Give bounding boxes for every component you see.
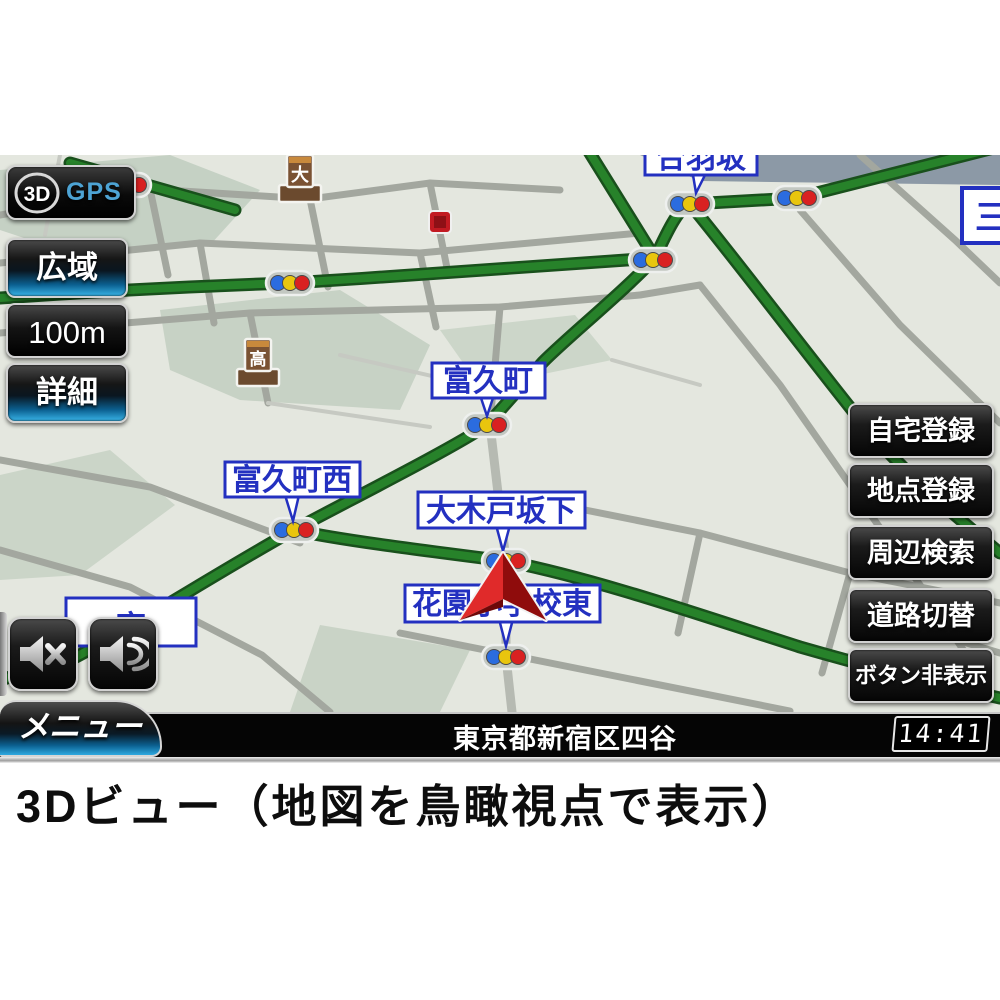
svg-text:合羽坂: 合羽坂 [656,155,746,175]
nearby-search-button[interactable]: 周辺検索 [848,525,994,580]
svg-text:高: 高 [250,349,267,369]
home-register-button[interactable]: 自宅登録 [848,403,994,458]
address-text: 東京都新宿区四谷 [400,717,730,756]
label-tomihisacho: 富久町 [432,363,545,416]
edge-fragment [0,612,7,696]
3d-badge-icon: 3D [14,172,60,214]
road-switch-button[interactable]: 道路切替 [848,588,994,643]
speaker-mute-icon [17,632,69,676]
label-san: 三 [962,188,1000,243]
label-kappazaka: 合羽坂 [645,155,757,193]
clock: 14:41 [891,716,990,752]
mute-button[interactable] [8,617,78,691]
page: 大 高 [0,0,1000,1000]
screen-bottom-edge [0,757,1000,763]
point-register-button[interactable]: 地点登録 [848,463,994,518]
svg-text:3D: 3D [24,183,51,206]
gps-label: GPS [66,178,122,207]
zoom-out-wide-button[interactable]: 広域 [6,238,128,298]
mode-panel[interactable]: 3D GPS [6,165,136,220]
svg-text:富久町: 富久町 [443,364,533,398]
zoom-in-detail-button[interactable]: 詳細 [6,363,128,423]
scale-100m-button[interactable]: 100m [6,303,128,358]
university-icon: 大 [279,155,321,202]
speaker-button[interactable] [88,617,158,691]
svg-text:富久町西: 富久町西 [232,463,352,497]
speaker-on-icon [97,632,149,676]
nav-screen: 大 高 [0,155,1000,763]
menu-button[interactable]: メニュー [0,700,162,757]
svg-text:三: 三 [975,199,1000,237]
svg-text:大: 大 [291,164,309,185]
label-okidozakashita: 大木戸坂下 [418,492,585,551]
red-poi-icon [429,211,451,233]
caption-text: 3Dビュー（地図を鳥瞰視点で表示） [16,770,986,835]
hide-buttons-button[interactable]: ボタン非表示 [848,648,994,703]
svg-text:大木戸坂下: 大木戸坂下 [426,495,576,528]
